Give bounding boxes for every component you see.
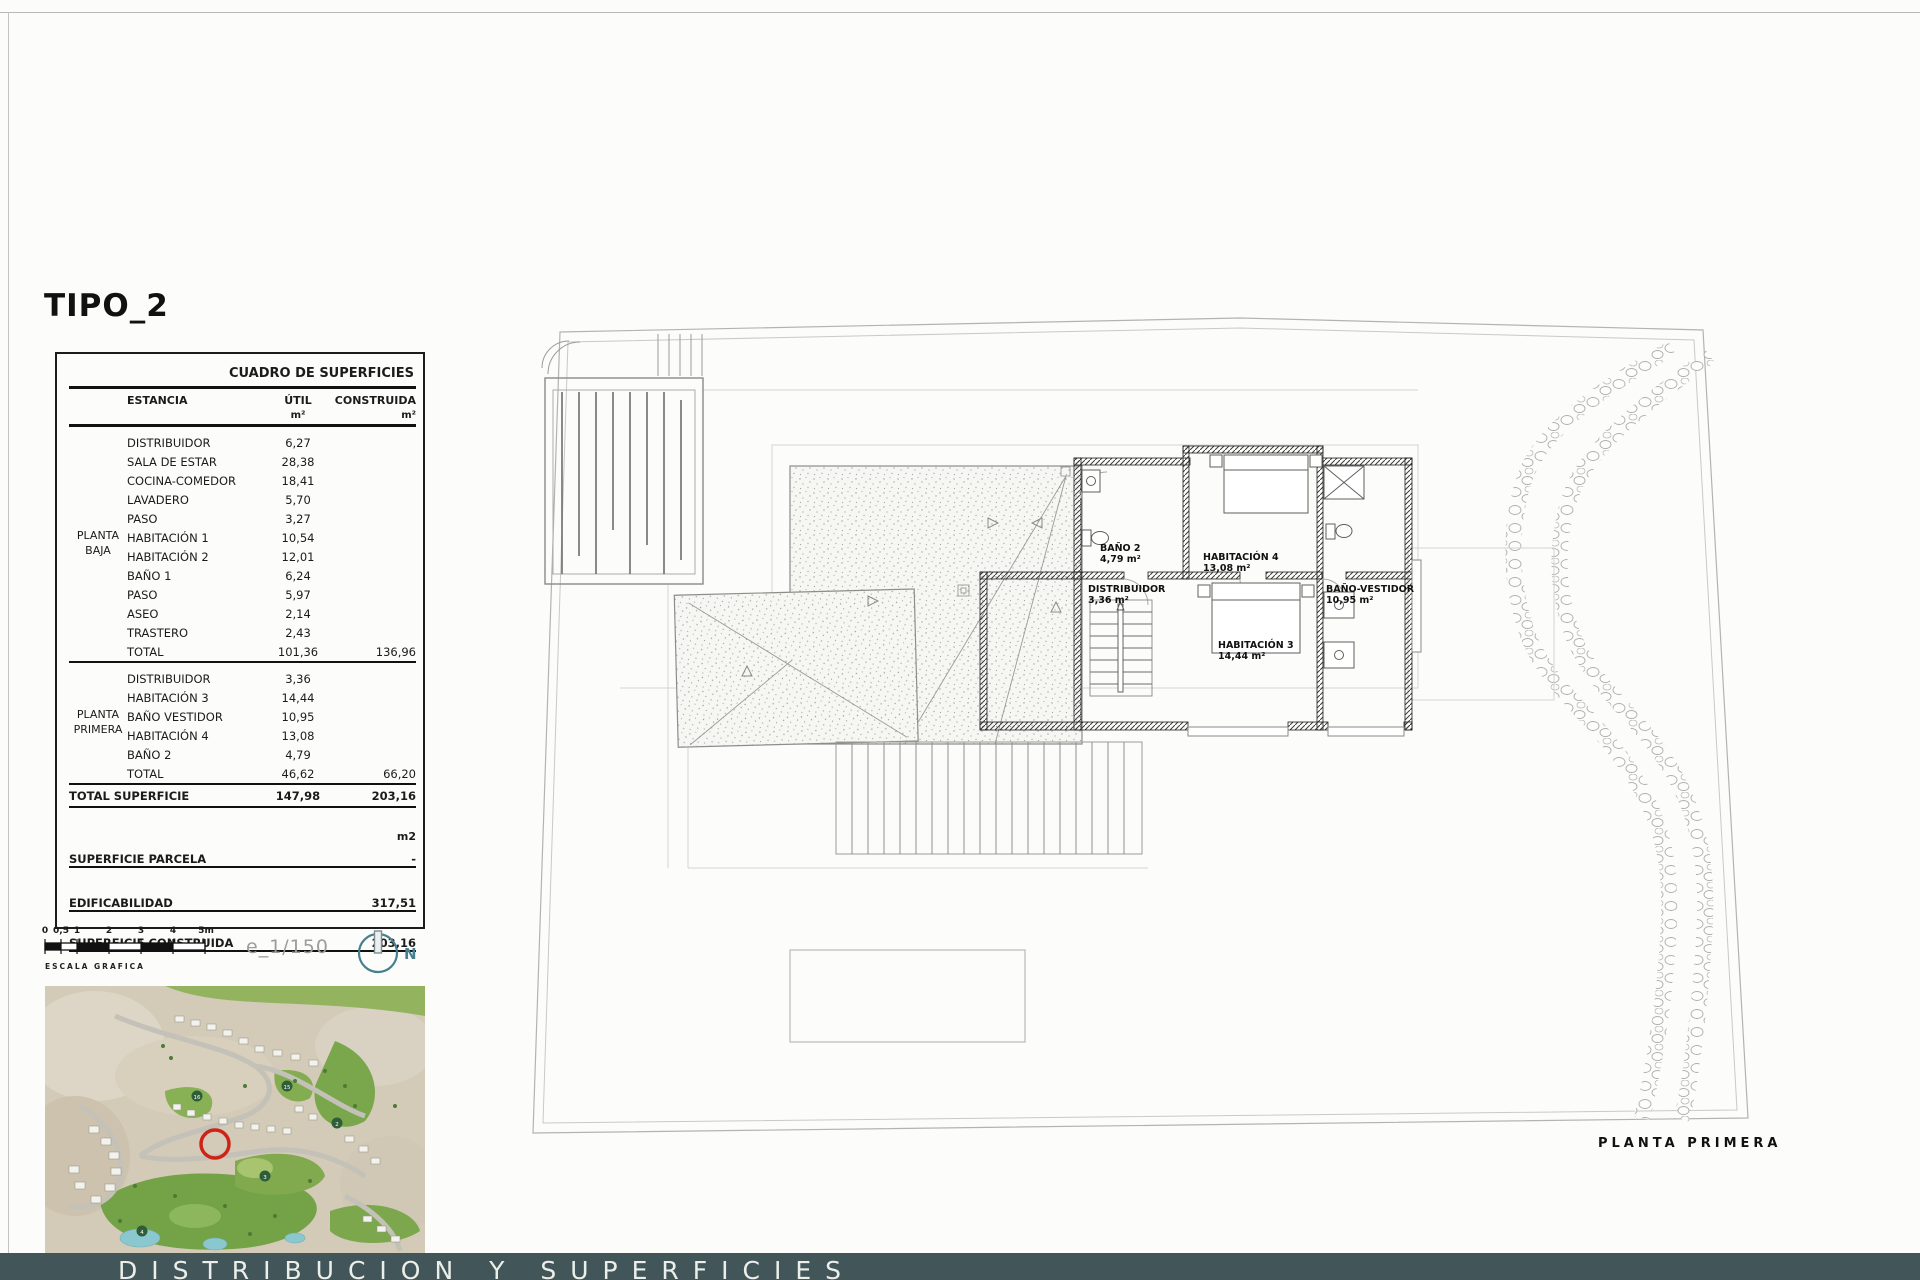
svg-text:2: 2 [335, 1122, 339, 1128]
site-map: 16 15 2 3 4 [45, 986, 425, 1253]
roof-planes [674, 466, 1082, 747]
plan-caption: PLANTA PRIMERA [1598, 1136, 1781, 1151]
room-area-distribuidor: 3,36 m² [1088, 595, 1129, 606]
svg-text:4: 4 [140, 1230, 144, 1236]
room-label-bano-vestidor: BAÑO-VESTIDOR [1326, 584, 1415, 595]
sheet-footer-label: DISTRIBUCION Y SUPERFICIES [118, 1256, 1920, 1280]
room-label-bano2: BAÑO 2 [1100, 543, 1141, 554]
stairs [1090, 600, 1152, 696]
pergola [542, 334, 703, 584]
room-area-habitacion4: 13,08 m² [1203, 563, 1250, 574]
room-label-habitacion3: HABITACIÓN 3 [1218, 639, 1294, 651]
svg-text:15: 15 [284, 1085, 291, 1091]
room-label-habitacion4: HABITACIÓN 4 [1203, 551, 1279, 563]
stone-path-bands [1513, 348, 1710, 1120]
sheet-footer-bar: DISTRIBUCION Y SUPERFICIES [0, 1253, 1920, 1280]
room-area-bano2: 4,79 m² [1100, 554, 1141, 565]
pool [790, 950, 1025, 1042]
deck [836, 742, 1142, 854]
room-label-distribuidor: DISTRIBUIDOR [1088, 584, 1166, 595]
svg-text:3: 3 [263, 1175, 267, 1181]
room-area-habitacion3: 14,44 m² [1218, 651, 1265, 662]
svg-text:16: 16 [194, 1095, 201, 1101]
room-area-bano-vestidor: 10,95 m² [1326, 595, 1373, 606]
